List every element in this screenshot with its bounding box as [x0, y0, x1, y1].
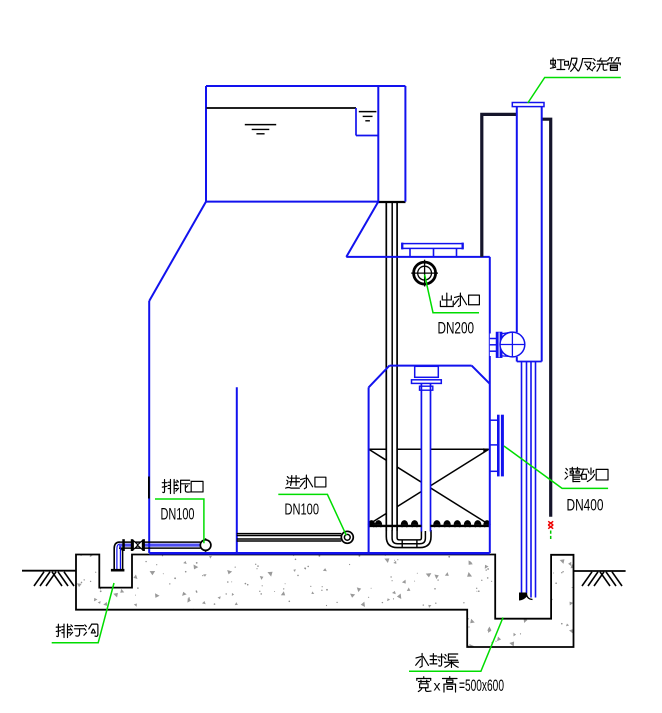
- svg-text:x: x: [434, 678, 441, 694]
- svg-text:DN100: DN100: [285, 502, 320, 519]
- svg-text:=500x600: =500x600: [459, 677, 504, 695]
- svg-text:DN200: DN200: [438, 320, 475, 338]
- svg-text:DN400: DN400: [567, 497, 604, 515]
- svg-text:DN100: DN100: [161, 506, 195, 524]
